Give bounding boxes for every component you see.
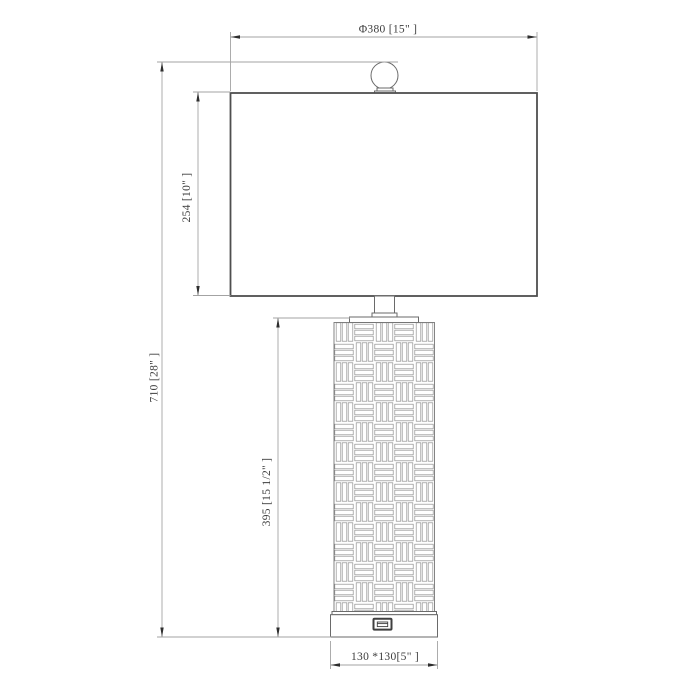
dimension-shade-height: 254 [10" ] — [181, 92, 231, 296]
lamp-body-basketweave — [334, 323, 435, 612]
shade-height-label: 254 [10" ] — [181, 173, 193, 223]
total-height-label: 710 [28" ] — [149, 353, 161, 403]
drawing-svg: Φ380 [15" ] 710 [28" ] 254 [10" ] 395 [1… — [0, 0, 700, 700]
dimension-base-size: 130 *130[5" ] — [331, 641, 438, 669]
shade-diameter-label: Φ380 [15" ] — [359, 24, 418, 36]
finial-ball — [371, 62, 398, 89]
usb-port-icon — [374, 619, 392, 630]
lamp-neck — [350, 296, 419, 323]
lamp-figure — [231, 62, 538, 637]
lamp-dimension-drawing: Φ380 [15" ] 710 [28" ] 254 [10" ] 395 [1… — [0, 0, 700, 700]
base-size-label: 130 *130[5" ] — [351, 651, 419, 663]
body-height-label: 395 [15 1/2" ] — [261, 458, 273, 527]
lamp-shade — [231, 93, 538, 296]
